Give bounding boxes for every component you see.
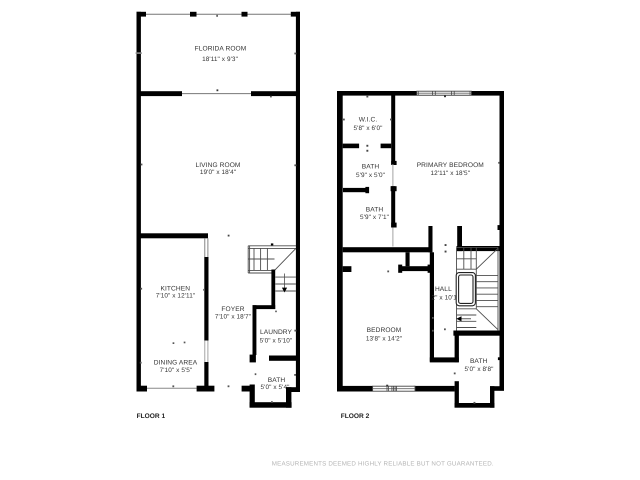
svg-text:5'8" x 6'0": 5'8" x 6'0": [353, 125, 382, 132]
svg-text:BATH: BATH: [366, 206, 384, 213]
svg-text:DINING AREA: DINING AREA: [154, 359, 198, 366]
svg-text:5'9" x 5'0": 5'9" x 5'0": [356, 172, 385, 179]
svg-text:5'0" x 5'10": 5'0" x 5'10": [260, 338, 293, 345]
svg-text:LIVING ROOM: LIVING ROOM: [195, 162, 240, 169]
svg-text:FLORIDA ROOM: FLORIDA ROOM: [195, 46, 247, 53]
svg-text:12'11" x 18'5": 12'11" x 18'5": [431, 170, 471, 177]
svg-text:HALL: HALL: [435, 286, 452, 293]
svg-text:W.I.C.: W.I.C.: [359, 117, 378, 124]
svg-text:18'11" x 9'3": 18'11" x 9'3": [202, 56, 238, 63]
svg-text:FLOOR 1: FLOOR 1: [137, 413, 166, 420]
svg-text:2" x 10'1": 2" x 10'1": [432, 294, 460, 301]
svg-text:FOYER: FOYER: [221, 306, 244, 313]
svg-text:5'0" x 5'4": 5'0" x 5'4": [260, 384, 289, 391]
svg-text:5'0" x 8'8": 5'0" x 8'8": [464, 366, 493, 373]
svg-text:5'9" x 7'1": 5'9" x 7'1": [360, 214, 389, 221]
svg-text:BATH: BATH: [362, 163, 380, 170]
svg-text:BEDROOM: BEDROOM: [367, 327, 402, 334]
svg-text:PRIMARY BEDROOM: PRIMARY BEDROOM: [417, 162, 484, 169]
svg-text:7'10" x 18'7": 7'10" x 18'7": [215, 313, 251, 320]
svg-text:LAUNDRY: LAUNDRY: [260, 329, 293, 336]
svg-text:7'10" x 12'11": 7'10" x 12'11": [156, 292, 196, 299]
svg-text:BATH: BATH: [470, 358, 488, 365]
svg-text:MEASUREMENTS DEEMED HIGHLY REL: MEASUREMENTS DEEMED HIGHLY RELIABLE BUT …: [272, 460, 494, 467]
svg-text:7'10" x 5'5": 7'10" x 5'5": [160, 367, 193, 374]
svg-text:19'0" x 18'4": 19'0" x 18'4": [200, 169, 236, 176]
svg-text:FLOOR 2: FLOOR 2: [341, 413, 370, 420]
svg-text:13'8" x 14'2": 13'8" x 14'2": [366, 335, 402, 342]
